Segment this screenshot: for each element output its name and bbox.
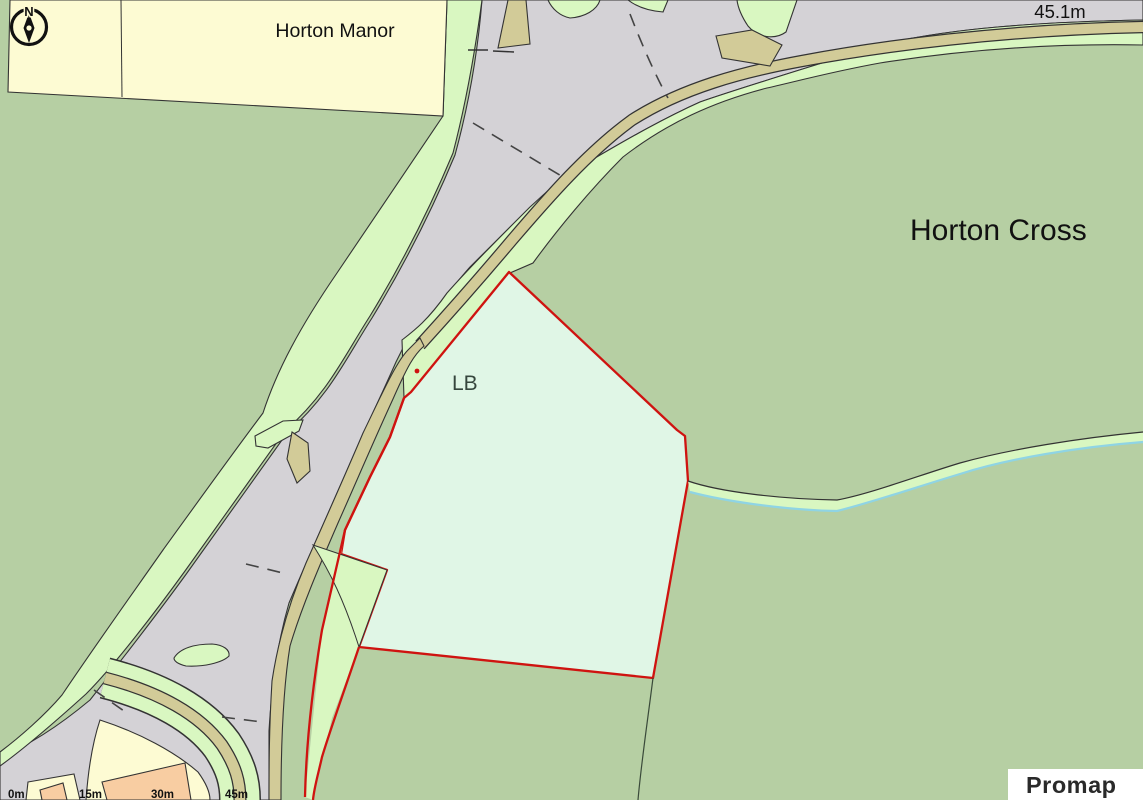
scale-label-15: 15m: [79, 789, 102, 800]
promap-logo: Promap: [1008, 769, 1143, 800]
letter-box-label: LB: [452, 372, 478, 395]
letter-box-marker: [415, 369, 420, 374]
compass-north-label: N: [24, 4, 33, 19]
area-label: Horton Cross: [910, 214, 1087, 247]
scale-label-30: 30m: [151, 789, 174, 800]
scale-label-45: 45m: [225, 789, 248, 800]
map-canvas[interactable]: N Horton Manor 45.1m Horton Cross LB 0m …: [0, 0, 1143, 800]
promap-logo-text: Promap: [1026, 772, 1117, 798]
ordnance-map: N Horton Manor 45.1m Horton Cross LB 0m …: [0, 0, 1143, 800]
manor-label: Horton Manor: [275, 20, 395, 42]
spot-height-label: 45.1m: [1034, 1, 1085, 22]
scale-label-0: 0m: [8, 789, 25, 800]
